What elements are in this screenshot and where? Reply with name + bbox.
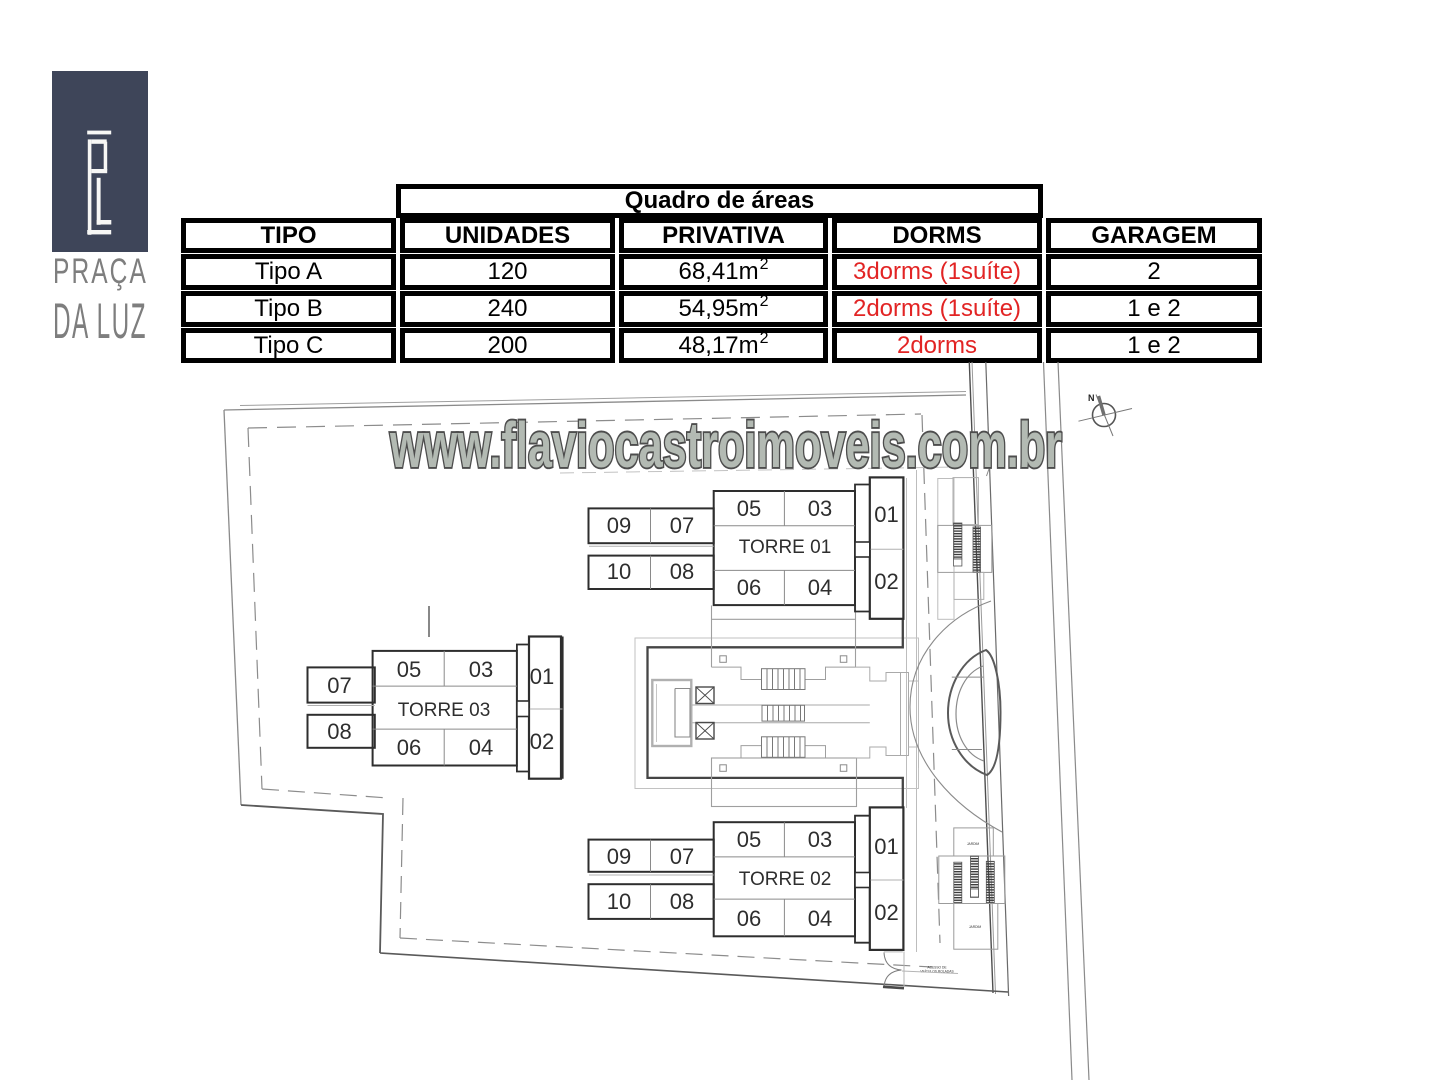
svg-text:01: 01: [874, 502, 898, 527]
svg-text:05: 05: [737, 827, 761, 852]
svg-text:04: 04: [808, 575, 832, 600]
svg-text:02: 02: [530, 729, 554, 754]
svg-text:09: 09: [607, 844, 631, 869]
svg-text:04: 04: [808, 906, 832, 931]
svg-text:02: 02: [874, 569, 898, 594]
svg-text:08: 08: [327, 719, 351, 744]
svg-text:TORRE 03: TORRE 03: [398, 700, 491, 721]
svg-text:JARDIM: JARDIM: [969, 925, 982, 929]
svg-text:09: 09: [607, 513, 631, 538]
svg-text:03: 03: [808, 827, 832, 852]
svg-text:06: 06: [737, 575, 761, 600]
svg-text:08: 08: [670, 559, 694, 584]
svg-text:10: 10: [607, 559, 631, 584]
svg-text:07: 07: [327, 673, 351, 698]
svg-text:10: 10: [607, 889, 631, 914]
svg-text:JARDIM: JARDIM: [967, 842, 980, 846]
svg-text:04: 04: [469, 735, 493, 760]
svg-text:07: 07: [670, 513, 694, 538]
svg-text:06: 06: [737, 906, 761, 931]
svg-text:07: 07: [670, 844, 694, 869]
svg-text:N: N: [1088, 393, 1095, 403]
svg-text:05: 05: [397, 657, 421, 682]
svg-text:03: 03: [808, 496, 832, 521]
svg-text:TORRE 02: TORRE 02: [739, 869, 832, 890]
svg-text:08: 08: [670, 889, 694, 914]
svg-text:TORRE 01: TORRE 01: [739, 537, 832, 558]
svg-text:02: 02: [874, 900, 898, 925]
svg-text:01: 01: [874, 834, 898, 859]
svg-text:01: 01: [530, 664, 554, 689]
svg-text:06: 06: [397, 735, 421, 760]
svg-text:www.flaviocastroimoveis.com.br: www.flaviocastroimoveis.com.br: [389, 409, 1062, 481]
svg-text:03: 03: [469, 657, 493, 682]
svg-text:05: 05: [737, 496, 761, 521]
